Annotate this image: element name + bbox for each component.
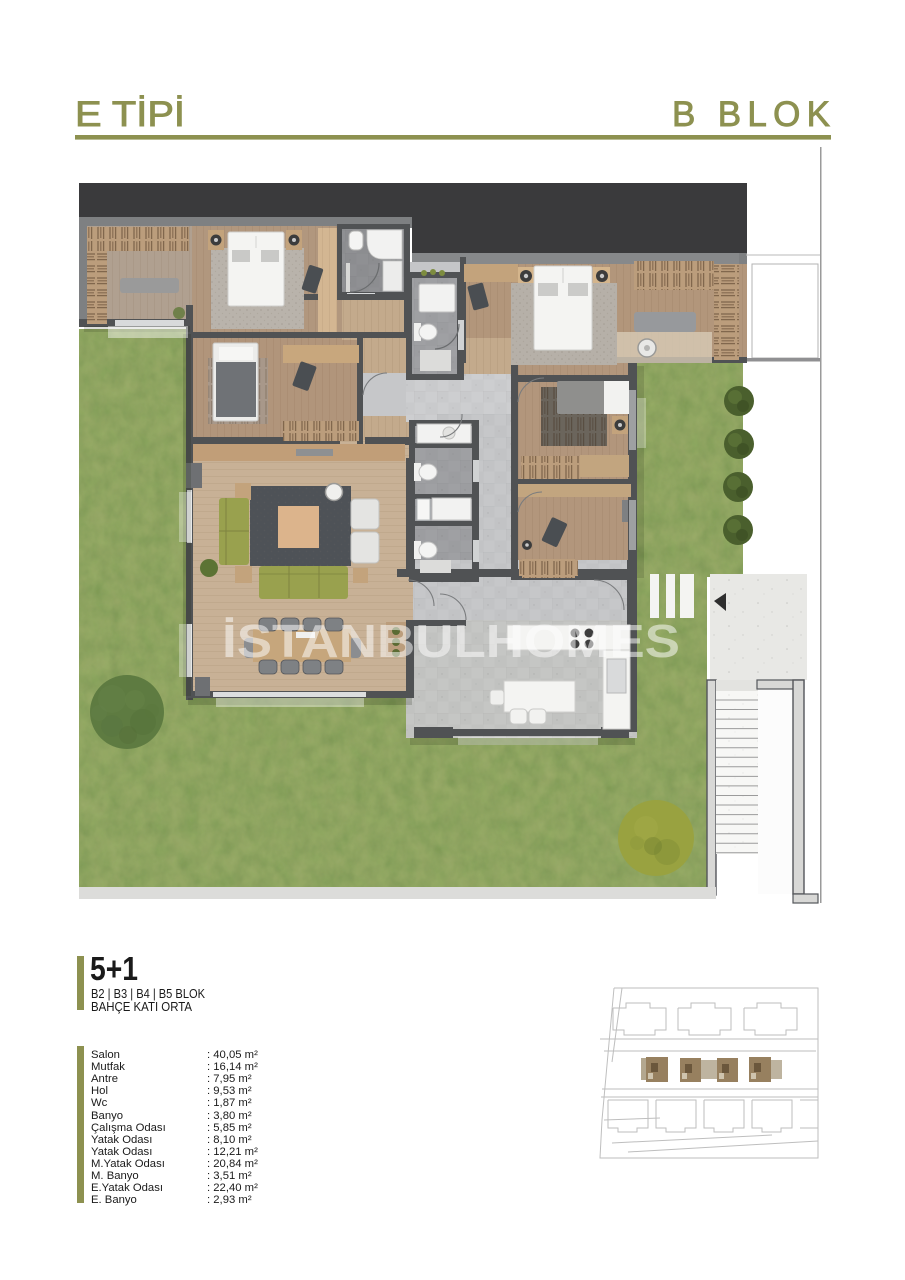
svg-text:Çalışma Odası: Çalışma Odası	[91, 1122, 166, 1134]
svg-text:Salon: Salon	[91, 1049, 120, 1061]
svg-text:Yatak Odası: Yatak Odası	[91, 1134, 152, 1146]
svg-text:E.Yatak Odası: E.Yatak Odası	[91, 1182, 163, 1194]
svg-text:: 1,87 m²: : 1,87 m²	[207, 1097, 252, 1109]
svg-text:: 9,53 m²: : 9,53 m²	[207, 1085, 252, 1097]
svg-text:BAHÇE KATI ORTA: BAHÇE KATI ORTA	[91, 1000, 193, 1014]
svg-text:: 40,05 m²: : 40,05 m²	[207, 1049, 258, 1061]
svg-text:E TİPİ: E TİPİ	[75, 95, 185, 134]
svg-text:İSTANBULHOMES: İSTANBULHOMES	[222, 615, 680, 667]
svg-text:Banyo: Banyo	[91, 1110, 123, 1122]
svg-text:: 16,14 m²: : 16,14 m²	[207, 1061, 258, 1073]
svg-text:E. Banyo: E. Banyo	[91, 1194, 137, 1206]
svg-text:Mutfak: Mutfak	[91, 1061, 125, 1073]
svg-text:: 7,95 m²: : 7,95 m²	[207, 1073, 252, 1085]
svg-text:: 20,84 m²: : 20,84 m²	[207, 1158, 258, 1170]
svg-text:: 5,85 m²: : 5,85 m²	[207, 1122, 252, 1134]
svg-text:Yatak Odası: Yatak Odası	[91, 1146, 152, 1158]
svg-text:: 3,80 m²: : 3,80 m²	[207, 1110, 252, 1122]
svg-text:M. Banyo: M. Banyo	[91, 1170, 139, 1182]
svg-text:M.Yatak Odası: M.Yatak Odası	[91, 1158, 165, 1170]
svg-text:Hol: Hol	[91, 1085, 108, 1097]
svg-text:: 22,40 m²: : 22,40 m²	[207, 1182, 258, 1194]
svg-text:: 12,21 m²: : 12,21 m²	[207, 1146, 258, 1158]
svg-text:: 3,51 m²: : 3,51 m²	[207, 1170, 252, 1182]
svg-text:: 8,10 m²: : 8,10 m²	[207, 1134, 252, 1146]
svg-text:: 2,93 m²: : 2,93 m²	[207, 1194, 252, 1206]
svg-text:B2 | B3 | B4 | B5 BLOK: B2 | B3 | B4 | B5 BLOK	[91, 987, 206, 1001]
svg-text:Antre: Antre	[91, 1073, 118, 1085]
svg-text:Wc: Wc	[91, 1097, 108, 1109]
svg-text:5+1: 5+1	[90, 950, 138, 987]
